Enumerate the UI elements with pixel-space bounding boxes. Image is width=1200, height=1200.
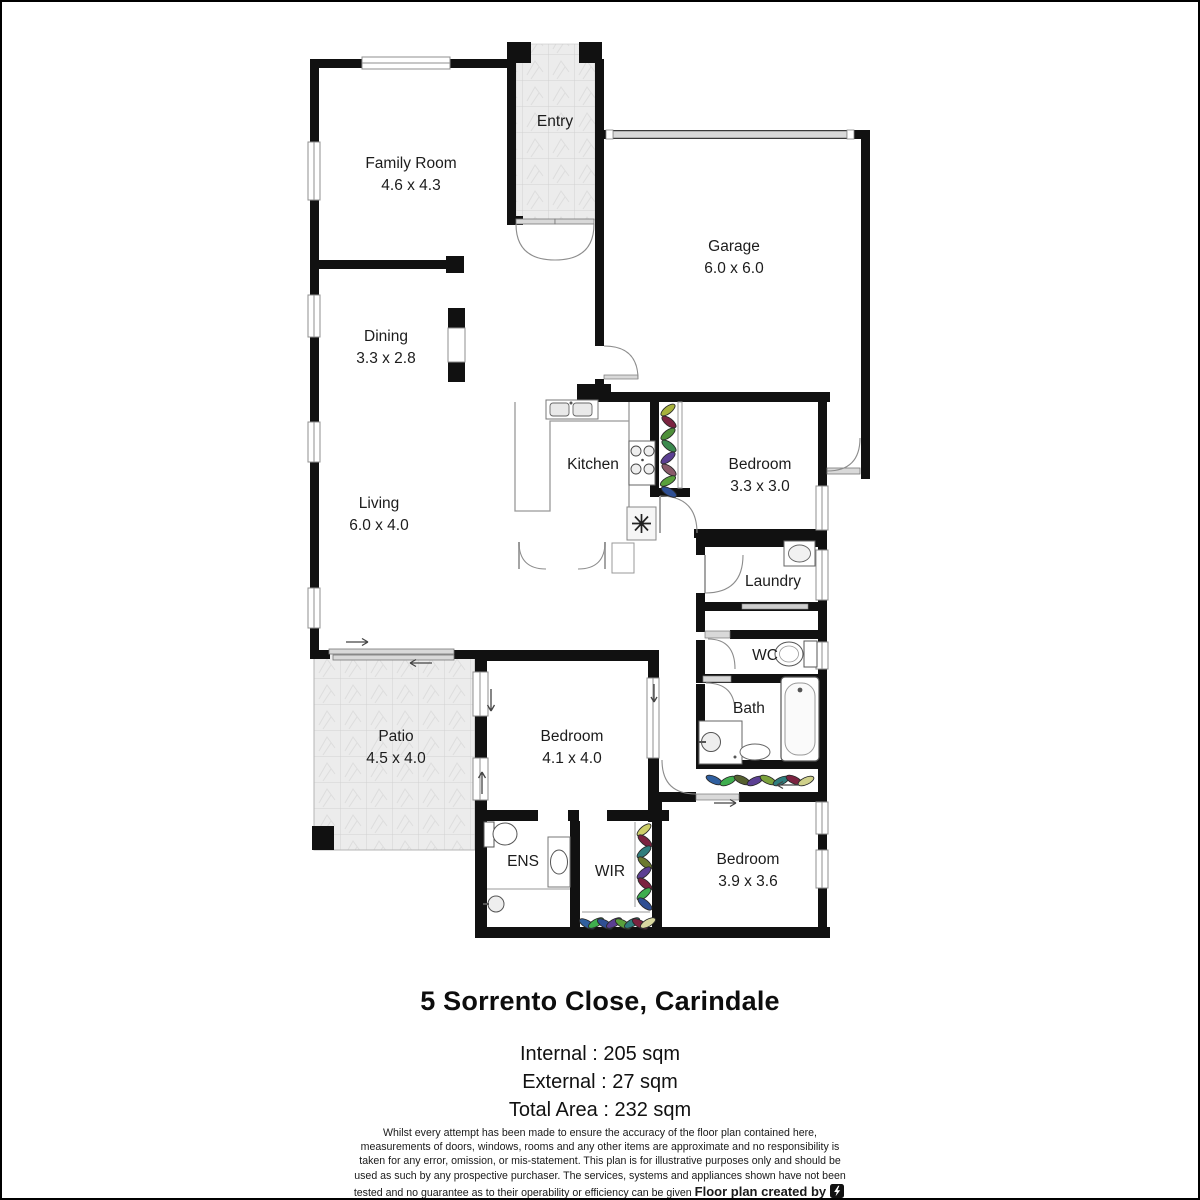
fridge-icon: [612, 543, 634, 573]
robe-clothes-icon-wir-side: [635, 822, 654, 912]
wc-toilet-icon: [775, 641, 817, 667]
area-external: External : 27 sqm: [2, 1068, 1198, 1096]
floorplan-drawing: Family Room 4.6 x 4.3 Entry Garage 6.0 x…: [2, 2, 1200, 962]
room-label-laundry: Laundry: [745, 573, 801, 590]
kitchen-sink-icon: [546, 400, 598, 419]
ens-toilet-icon: [484, 822, 517, 847]
page-title: 5 Sorrento Close, Carindale: [2, 986, 1198, 1017]
area-internal: Internal : 205 sqm: [2, 1040, 1198, 1068]
room-label-dining: Dining: [364, 328, 408, 345]
room-dims-garage: 6.0 x 6.0: [704, 260, 764, 277]
room-label-ens: ENS: [507, 853, 539, 870]
fastfocus-logo-icon: [830, 1184, 844, 1200]
room-dims-family-room: 4.6 x 4.3: [381, 177, 440, 194]
room-label-bedroom-2: Bedroom: [729, 456, 792, 473]
kitchen-counter: [515, 402, 634, 573]
room-dims-bedroom-3: 3.9 x 3.6: [718, 873, 777, 890]
area-summary: Internal : 205 sqm External : 27 sqm Tot…: [2, 1040, 1198, 1124]
room-label-bath: Bath: [733, 700, 765, 717]
floorplan-page: Family Room 4.6 x 4.3 Entry Garage 6.0 x…: [0, 0, 1200, 1200]
area-total: Total Area : 232 sqm: [2, 1096, 1198, 1124]
room-label-patio: Patio: [378, 728, 413, 745]
laundry-tub-icon: [784, 541, 815, 566]
shower-icon: [699, 721, 742, 764]
room-dims-bedroom-2: 3.3 x 3.0: [730, 478, 790, 495]
vanity-basin-icon: [740, 744, 770, 760]
room-label-bedroom-3: Bedroom: [717, 851, 780, 868]
room-label-living: Living: [359, 495, 400, 512]
cooktop-icon: [629, 441, 655, 485]
ens-vanity-basin-icon: [548, 837, 570, 887]
garage-door: [613, 131, 847, 138]
pantry-star-icon: [627, 507, 656, 540]
room-label-entry: Entry: [537, 113, 573, 130]
entry-tile-floor: [516, 44, 595, 220]
room-dims-patio: 4.5 x 4.0: [366, 750, 426, 767]
room-label-bedroom-main: Bedroom: [541, 728, 604, 745]
room-dims-dining: 3.3 x 2.8: [356, 350, 415, 367]
bathtub-icon: [781, 677, 819, 761]
room-label-garage: Garage: [708, 238, 760, 255]
room-label-wir: WIR: [595, 863, 625, 880]
room-dims-living: 6.0 x 4.0: [349, 517, 409, 534]
room-label-wc: WC: [752, 647, 778, 664]
room-label-family-room: Family Room: [365, 155, 456, 172]
credit-text: Floor plan created by: [695, 1184, 826, 1199]
dining-column: [448, 328, 465, 362]
room-label-kitchen: Kitchen: [567, 456, 619, 473]
room-dims-bedroom-main: 4.1 x 4.0: [542, 750, 602, 767]
disclaimer: Whilst every attempt has been made to en…: [352, 1126, 848, 1200]
robe-clothes-icon-bedroom2: [659, 402, 678, 499]
